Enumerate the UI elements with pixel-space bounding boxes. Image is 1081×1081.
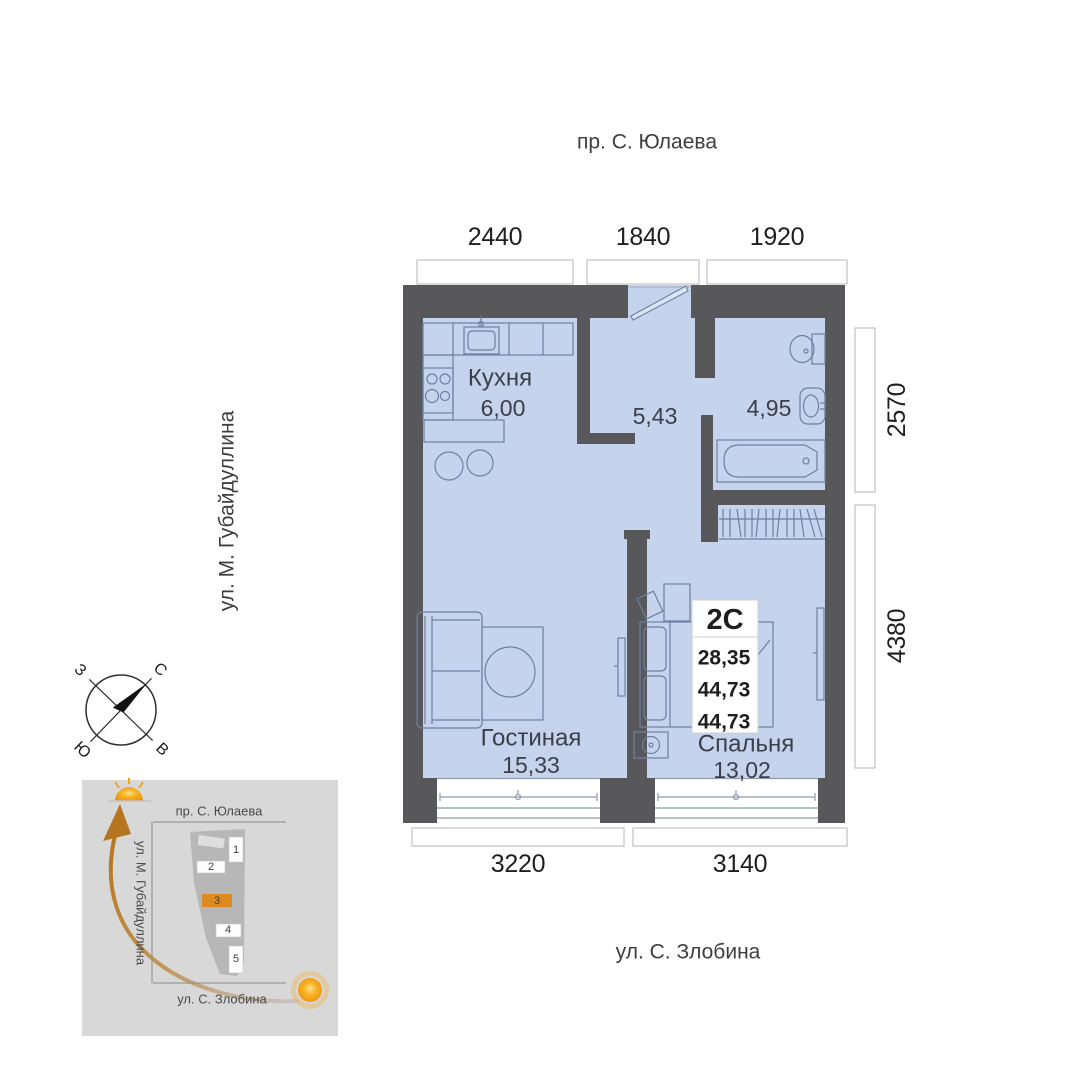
apartment-type: 2С [706, 604, 743, 636]
dim-top-1: 2440 [468, 223, 522, 251]
info-value-1: 28,35 [698, 647, 751, 670]
wall-wardrobe-stub [701, 505, 718, 542]
info-value-3: 44,73 [698, 711, 751, 734]
room-label-living: Гостиная [481, 725, 582, 752]
wall-partition-cap [624, 530, 650, 539]
minimap-street-top: пр. С. Юлаева [176, 804, 263, 819]
window-opening [437, 778, 600, 823]
wall-top-right [691, 285, 845, 318]
block-label-5: 5 [233, 953, 239, 965]
minimap-street-left: ул. М. Губайдуллина [134, 841, 149, 966]
block-label-4: 4 [225, 924, 231, 936]
room-label-kitchen: Кухня [468, 365, 532, 392]
block-label-2: 2 [208, 861, 214, 873]
wall-pier-bottom-right [818, 778, 845, 823]
room-label-bedroom: Спальня [698, 731, 794, 758]
street-label-left: ул. М. Губайдуллина [216, 410, 239, 611]
wall-kitchen-stub [577, 433, 635, 444]
compass-south: Ю [70, 739, 93, 762]
compass-north: С [150, 660, 170, 680]
wall-kitchen [577, 318, 590, 433]
room-area-hallway: 5,43 [633, 403, 678, 429]
wall-bathroom-upper [695, 318, 715, 378]
floorplan-page: пр. С. Юлаева ул. М. Губайдуллина ул. С.… [0, 0, 1081, 1081]
wall-right [825, 285, 845, 812]
window-bedroom [655, 778, 818, 823]
room-area-kitchen: 6,00 [481, 395, 526, 421]
compass-rose: С В Ю З [32, 621, 211, 800]
wall-pier-bottom-left [403, 778, 437, 823]
compass-west: З [71, 661, 90, 680]
dim-bottom-2: 3140 [713, 850, 767, 878]
minimap-street-bottom: ул. С. Злобина [177, 992, 267, 1007]
floorplan-drawing: пр. С. Юлаева ул. М. Губайдуллина ул. С.… [0, 0, 1081, 1081]
room-area-bathroom: 4,95 [747, 395, 792, 421]
wall-bathroom-bottom [701, 490, 825, 505]
dim-right-2: 4380 [883, 609, 911, 663]
room-area-living: 15,33 [502, 752, 560, 778]
info-value-2: 44,73 [698, 679, 751, 702]
apartment-info-box: 2С 28,35 44,73 44,73 [692, 600, 758, 734]
wall-top-left [403, 285, 628, 318]
window-opening [655, 778, 818, 823]
wall-left [403, 285, 423, 812]
room-area-bedroom: 13,02 [713, 757, 771, 783]
dim-bottom-1: 3220 [491, 850, 545, 878]
dim-top-2: 1840 [616, 223, 670, 251]
street-label-top: пр. С. Юлаева [577, 131, 717, 154]
compass-east: В [152, 740, 171, 760]
block-label-3: 3 [214, 895, 220, 907]
street-label-bottom: ул. С. Злобина [616, 941, 761, 964]
dim-right-1: 2570 [883, 383, 911, 437]
block-label-1: 1 [233, 844, 239, 856]
location-minimap: пр. С. Юлаева ул. М. Губайдуллина ул. С.… [82, 778, 338, 1036]
sunrise-sun-icon [294, 974, 327, 1007]
wall-bathroom-lower [701, 415, 713, 492]
dim-top-3: 1920 [750, 223, 804, 251]
window-living [437, 778, 600, 823]
